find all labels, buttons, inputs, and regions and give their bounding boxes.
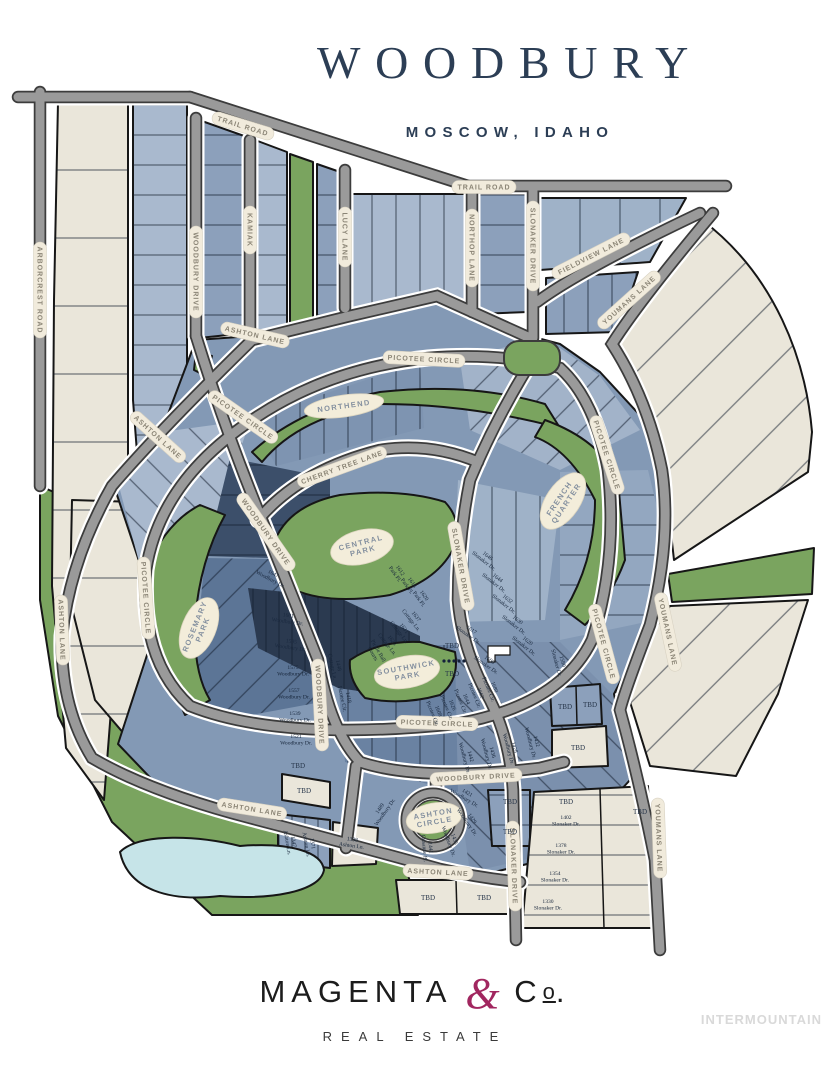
road-label-pill: TRAIL ROAD xyxy=(452,181,516,194)
road-label-pill: ASHTON LANE xyxy=(54,595,69,665)
brand-magenta: MAGENTA xyxy=(259,974,450,1009)
ampersand-flourish: & xyxy=(465,969,499,1018)
road-label-pill: KAMIAK xyxy=(244,206,257,254)
lot-label: TBD xyxy=(445,670,459,678)
lot-label: TBD xyxy=(291,762,305,770)
svg-text:TRAIL ROAD: TRAIL ROAD xyxy=(457,185,510,192)
brokerage-name: MAGENTA & Co. xyxy=(200,968,630,1019)
brokerage-logo: MAGENTA & Co. REAL ESTATE xyxy=(200,968,630,1044)
park-strip xyxy=(290,154,313,336)
svg-text:WOODBURY DRIVE: WOODBURY DRIVE xyxy=(192,232,199,311)
brand-c: C xyxy=(514,974,542,1009)
page-location: MOSCOW, IDAHO xyxy=(300,124,720,141)
brand-o: o xyxy=(543,979,556,1004)
svg-text:NORTHOP LANE: NORTHOP LANE xyxy=(468,214,475,282)
lot-line xyxy=(456,880,457,914)
lot-label: TBD xyxy=(445,642,459,650)
lot-line xyxy=(576,686,577,725)
brand-period: . xyxy=(556,974,571,1009)
roundabout-median xyxy=(504,341,560,375)
lot-label: TBD xyxy=(583,701,597,709)
svg-text:KAMIAK: KAMIAK xyxy=(246,213,253,247)
lot-label: TBD xyxy=(503,798,517,806)
lot-lines xyxy=(255,140,287,336)
road-label-pill: SLONAKER DRIVE xyxy=(527,201,540,291)
road-label-pill: LUCY LANE xyxy=(339,207,352,267)
intermountain-watermark: INTERMOUNTAIN xyxy=(701,1012,822,1027)
svg-text:ARBORCREST ROAD: ARBORCREST ROAD xyxy=(36,247,43,334)
lot-label: TBD xyxy=(559,798,573,806)
lot-label: TBD xyxy=(477,894,491,902)
brokerage-tagline: REAL ESTATE xyxy=(200,1029,630,1044)
lot-label: TBD xyxy=(503,828,517,836)
lot-lines xyxy=(478,194,528,314)
page-title: WOODBURY xyxy=(250,36,770,89)
svg-text:SLONAKER DRIVE: SLONAKER DRIVE xyxy=(529,208,536,285)
road-label-pill: WOODBURY DRIVE xyxy=(190,226,203,318)
park-strip xyxy=(668,548,814,602)
lot-label: TBD xyxy=(571,744,585,752)
woodbury-plat-page: WOODBURY MOSCOW, IDAHO xyxy=(0,0,834,1080)
svg-text:LUCY LANE: LUCY LANE xyxy=(341,213,348,262)
road-label-pill: YOUMANS LANE xyxy=(651,798,667,878)
lot-label: TBD xyxy=(421,894,435,902)
lot-label: TBD xyxy=(297,787,311,795)
lot-label: TBD xyxy=(558,703,572,711)
lot-lines xyxy=(199,120,247,338)
road-label-pill: NORTHOP LANE xyxy=(466,209,479,287)
road-label-pill: ARBORCREST ROAD xyxy=(34,242,47,338)
plat-map: .roads-white use{stroke:#ffffff;stroke-w… xyxy=(0,0,834,1080)
lot-label: TBD xyxy=(633,808,647,816)
